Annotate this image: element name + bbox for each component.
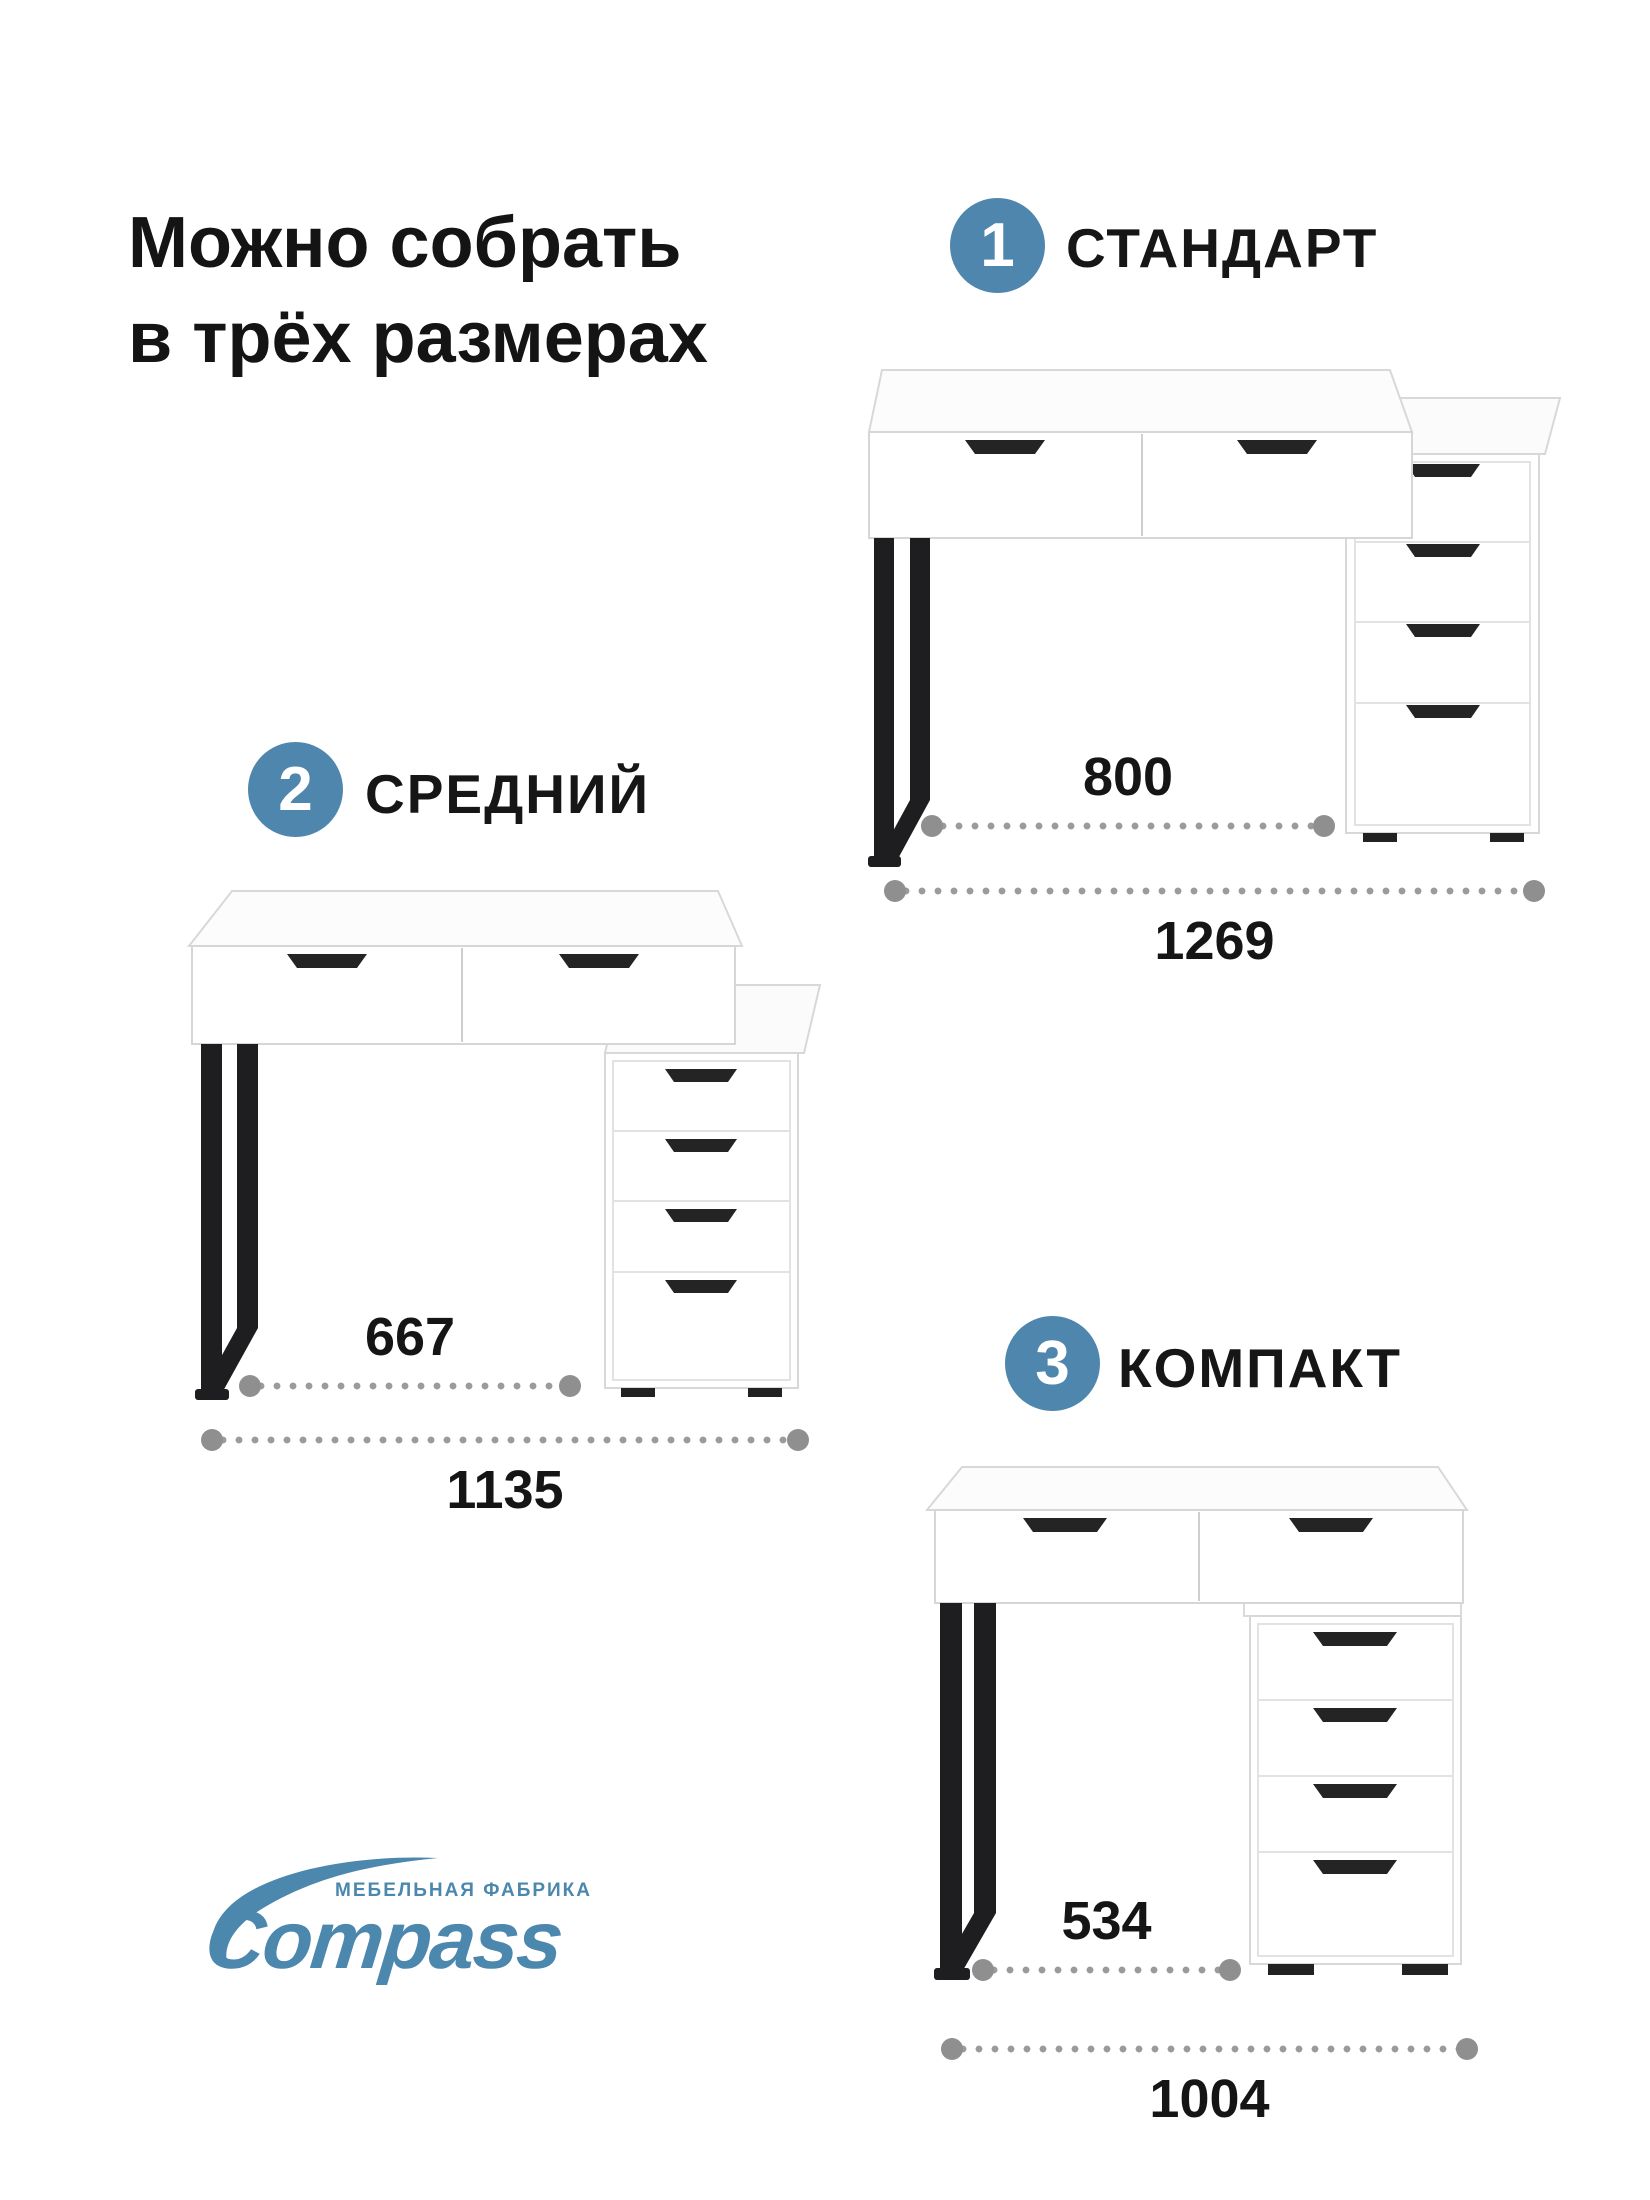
dim-endpoint-dot bbox=[1456, 2038, 1478, 2060]
drawer-handle-icon bbox=[665, 1069, 737, 1082]
drawer-handle-icon bbox=[559, 954, 639, 968]
pedestal-foot bbox=[1402, 1964, 1448, 1975]
drawer-handle-icon bbox=[1289, 1518, 1373, 1532]
drawer-handle-icon bbox=[1237, 440, 1317, 454]
drawer-handle-icon bbox=[965, 440, 1045, 454]
dim-endpoint-dot bbox=[1523, 880, 1545, 902]
desk-top-surface bbox=[869, 370, 1412, 432]
desk-drawer-box bbox=[192, 946, 735, 1044]
variant-2-number: 2 bbox=[278, 754, 312, 825]
desk-compact bbox=[927, 1467, 1467, 1603]
dim-dots bbox=[215, 1435, 795, 1445]
leg-rear-bar bbox=[237, 1044, 258, 1328]
dim-standard-outer: 1269 bbox=[888, 872, 1541, 971]
dim-dotted-line bbox=[976, 1965, 1237, 1975]
compass-logo: МЕБЕЛЬНАЯ ФАБРИКА Compass bbox=[200, 1850, 610, 2010]
desk-medium bbox=[189, 891, 742, 1044]
dim-endpoint-dot bbox=[972, 1959, 994, 1981]
leg-front-bar bbox=[940, 1603, 962, 1972]
drawer-handle-icon bbox=[1313, 1632, 1397, 1646]
pedestal-foot bbox=[748, 1388, 782, 1397]
logo-brand-text: Compass bbox=[201, 1894, 566, 1988]
dim-endpoint-dot bbox=[559, 1375, 581, 1397]
dim-endpoint-dot bbox=[1219, 1959, 1241, 1981]
drawer-handle-icon bbox=[1406, 464, 1480, 477]
dim-dots bbox=[935, 821, 1321, 831]
dim-dots bbox=[955, 2044, 1464, 2054]
dim-endpoint-dot bbox=[884, 880, 906, 902]
pedestal-foot bbox=[1268, 1964, 1314, 1975]
dim-value: 1269 bbox=[888, 912, 1541, 971]
dim-endpoint-dot bbox=[941, 2038, 963, 2060]
variant-1-label: СТАНДАРТ bbox=[1066, 216, 1378, 280]
leg-foot bbox=[868, 856, 901, 867]
variant-1-badge: 1 bbox=[950, 198, 1045, 293]
drawer-handle-icon bbox=[1023, 1518, 1107, 1532]
dim-dots bbox=[253, 1381, 567, 1391]
drawer-handle-icon bbox=[1406, 705, 1480, 718]
dim-medium-inner: 667 bbox=[243, 1308, 577, 1405]
desk-standard bbox=[869, 370, 1412, 538]
dim-value: 1135 bbox=[205, 1461, 805, 1520]
leg-front-bar bbox=[201, 1044, 222, 1393]
dim-dotted-line bbox=[925, 821, 1331, 831]
dim-standard-inner: 800 bbox=[925, 748, 1331, 845]
leg-rear-bar bbox=[974, 1603, 996, 1913]
pedestal-drawer bbox=[1355, 703, 1530, 825]
pedestal-foot bbox=[1363, 833, 1397, 842]
dim-medium-outer: 1135 bbox=[205, 1421, 805, 1520]
dim-value: 667 bbox=[243, 1308, 577, 1367]
dim-endpoint-dot bbox=[239, 1375, 261, 1397]
drawer-handle-icon bbox=[287, 954, 367, 968]
variant-3-label: КОМПАКТ bbox=[1118, 1336, 1402, 1400]
desk-leg-standard bbox=[868, 538, 930, 867]
leg-foot bbox=[195, 1389, 229, 1400]
page-title-line1: Можно собрать bbox=[128, 196, 768, 291]
variant-2-badge: 2 bbox=[248, 742, 343, 837]
dim-dots bbox=[986, 1965, 1227, 1975]
pedestal-foot bbox=[1490, 833, 1524, 842]
dim-dotted-line bbox=[945, 2044, 1474, 2054]
drawer-handle-icon bbox=[1313, 1784, 1397, 1798]
variant-1-number: 1 bbox=[980, 210, 1014, 281]
page-title: Можно собрать в трёх размерах bbox=[128, 196, 768, 386]
leg-front-bar bbox=[874, 538, 894, 860]
desk-top-surface bbox=[927, 1467, 1467, 1510]
dim-endpoint-dot bbox=[201, 1429, 223, 1451]
dim-compact-outer: 1004 bbox=[945, 2030, 1474, 2129]
dim-dots bbox=[898, 886, 1531, 896]
drawer-handle-icon bbox=[1313, 1860, 1397, 1874]
drawer-handle-icon bbox=[665, 1209, 737, 1222]
drawer-handle-icon bbox=[665, 1139, 737, 1152]
dim-compact-inner: 534 bbox=[976, 1892, 1237, 1989]
variant-3-number: 3 bbox=[1035, 1328, 1069, 1399]
desk-drawer-box bbox=[869, 432, 1412, 538]
page-title-line2: в трёх размерах bbox=[128, 291, 768, 386]
pedestal-medium bbox=[605, 985, 820, 1397]
drawer-handle-icon bbox=[1406, 624, 1480, 637]
drawer-handle-icon bbox=[1406, 544, 1480, 557]
drawer-handle-icon bbox=[665, 1280, 737, 1293]
leg-foot bbox=[934, 1968, 970, 1980]
variant-2-label: СРЕДНИЙ bbox=[365, 762, 650, 826]
dim-endpoint-dot bbox=[1313, 815, 1335, 837]
dim-dotted-line bbox=[243, 1381, 577, 1391]
pedestal-foot bbox=[621, 1388, 655, 1397]
dim-value: 1004 bbox=[945, 2070, 1474, 2129]
dim-value: 534 bbox=[976, 1892, 1237, 1951]
dim-dotted-line bbox=[888, 886, 1541, 896]
pedestal-compact bbox=[1244, 1603, 1461, 1975]
pedestal-top-edge bbox=[1244, 1603, 1461, 1616]
dim-value: 800 bbox=[925, 748, 1331, 807]
drawer-handle-icon bbox=[1313, 1708, 1397, 1722]
dim-endpoint-dot bbox=[921, 815, 943, 837]
desk-top-surface bbox=[189, 891, 742, 946]
dim-dotted-line bbox=[205, 1435, 805, 1445]
variant-3-badge: 3 bbox=[1005, 1316, 1100, 1411]
dim-endpoint-dot bbox=[787, 1429, 809, 1451]
